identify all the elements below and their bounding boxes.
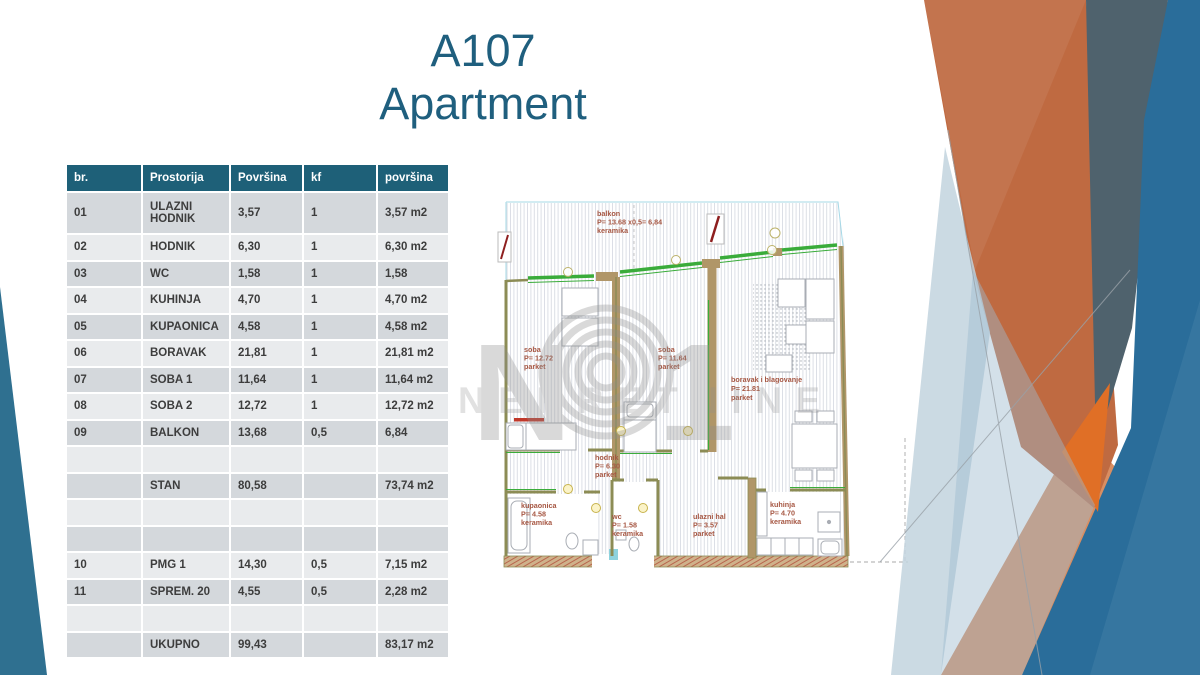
table-cell bbox=[230, 499, 303, 526]
table-cell: 11,64 bbox=[230, 367, 303, 394]
table-cell: 21,81 m2 bbox=[377, 340, 448, 367]
page-title: A107 Apartment bbox=[233, 24, 733, 130]
table-cell: 3,57 bbox=[230, 192, 303, 234]
title-line-2: Apartment bbox=[233, 77, 733, 130]
area-table: br. Prostorija Površina kf površina 01UL… bbox=[67, 165, 448, 657]
table-cell bbox=[377, 499, 448, 526]
floor-plan: balkon P= 13.68 x0,5= 6,84 keramika soba… bbox=[455, 193, 915, 608]
table-row: 03WC1,5811,58 bbox=[67, 261, 448, 288]
table-cell: 04 bbox=[67, 287, 142, 314]
table-cell: 0,5 bbox=[303, 552, 377, 579]
table-cell: 11 bbox=[67, 579, 142, 606]
table-cell: 0,5 bbox=[303, 420, 377, 447]
table-cell: 4,58 m2 bbox=[377, 314, 448, 341]
table-cell: HODNIK bbox=[142, 234, 230, 261]
table-cell bbox=[230, 605, 303, 632]
table-cell: 6,30 m2 bbox=[377, 234, 448, 261]
table-cell: 14,30 bbox=[230, 552, 303, 579]
table-row: 08SOBA 212,72112,72 m2 bbox=[67, 393, 448, 420]
table-cell: 99,43 bbox=[230, 632, 303, 658]
table-cell: 08 bbox=[67, 393, 142, 420]
col-header-br: br. bbox=[67, 165, 142, 192]
table-cell: 1 bbox=[303, 261, 377, 288]
table-cell: 7,15 m2 bbox=[377, 552, 448, 579]
table-cell: 1 bbox=[303, 340, 377, 367]
table-cell: STAN bbox=[142, 473, 230, 500]
table-row: 07SOBA 111,64111,64 m2 bbox=[67, 367, 448, 394]
table-cell: 09 bbox=[67, 420, 142, 447]
table-cell bbox=[377, 526, 448, 553]
table-cell: 80,58 bbox=[230, 473, 303, 500]
table-cell: 1 bbox=[303, 234, 377, 261]
table-cell: 11,64 m2 bbox=[377, 367, 448, 394]
table-cell: 12,72 m2 bbox=[377, 393, 448, 420]
table-cell: 06 bbox=[67, 340, 142, 367]
col-header-povrsina: Površina bbox=[230, 165, 303, 192]
table-cell: 1 bbox=[303, 393, 377, 420]
table-cell: 13,68 bbox=[230, 420, 303, 447]
decor-left-wedge bbox=[0, 285, 50, 675]
table-cell: ULAZNI HODNIK bbox=[142, 192, 230, 234]
table-cell bbox=[230, 446, 303, 473]
table-cell: PMG 1 bbox=[142, 552, 230, 579]
table-cell: 1,58 bbox=[377, 261, 448, 288]
table-cell: 01 bbox=[67, 192, 142, 234]
table-cell: 07 bbox=[67, 367, 142, 394]
table-cell: 21,81 bbox=[230, 340, 303, 367]
table-cell: 6,84 bbox=[377, 420, 448, 447]
table-cell bbox=[303, 473, 377, 500]
table-cell: 02 bbox=[67, 234, 142, 261]
table-cell bbox=[67, 605, 142, 632]
table-cell: KUHINJA bbox=[142, 287, 230, 314]
table-row: UKUPNO99,4383,17 m2 bbox=[67, 632, 448, 658]
table-cell: SPREM. 20 bbox=[142, 579, 230, 606]
table-cell: 3,57 m2 bbox=[377, 192, 448, 234]
table-row: 11SPREM. 204,550,52,28 m2 bbox=[67, 579, 448, 606]
table-cell bbox=[303, 446, 377, 473]
table-cell bbox=[303, 499, 377, 526]
table-row: STAN80,5873,74 m2 bbox=[67, 473, 448, 500]
table-cell: BALKON bbox=[142, 420, 230, 447]
table-cell: 10 bbox=[67, 552, 142, 579]
table-row bbox=[67, 499, 448, 526]
watermark-brand-word: NEKRETNINE bbox=[458, 380, 834, 421]
table-cell: 12,72 bbox=[230, 393, 303, 420]
table-row: 01ULAZNI HODNIK3,5713,57 m2 bbox=[67, 192, 448, 234]
table-cell bbox=[230, 526, 303, 553]
slide: A107 Apartment br. Prostorija Površina k… bbox=[0, 0, 1200, 675]
table-cell bbox=[303, 605, 377, 632]
table-cell: UKUPNO bbox=[142, 632, 230, 658]
table-row bbox=[67, 446, 448, 473]
table-cell: 05 bbox=[67, 314, 142, 341]
table-row: 10PMG 114,300,57,15 m2 bbox=[67, 552, 448, 579]
table-cell: 1 bbox=[303, 367, 377, 394]
table-row: 06BORAVAK21,81121,81 m2 bbox=[67, 340, 448, 367]
table-cell: SOBA 1 bbox=[142, 367, 230, 394]
table-cell bbox=[142, 526, 230, 553]
table-cell bbox=[67, 499, 142, 526]
area-table-body: 01ULAZNI HODNIK3,5713,57 m202HODNIK6,301… bbox=[67, 192, 448, 657]
table-cell bbox=[303, 632, 377, 658]
table-cell bbox=[67, 526, 142, 553]
table-row bbox=[67, 605, 448, 632]
table-cell: 73,74 m2 bbox=[377, 473, 448, 500]
table-cell: 03 bbox=[67, 261, 142, 288]
table-cell: 0,5 bbox=[303, 579, 377, 606]
table-cell: 1 bbox=[303, 287, 377, 314]
table-cell: 1 bbox=[303, 314, 377, 341]
table-row: 09BALKON13,680,56,84 bbox=[67, 420, 448, 447]
table-cell bbox=[377, 446, 448, 473]
table-cell bbox=[377, 605, 448, 632]
col-header-povrsina-2: površina bbox=[377, 165, 448, 192]
table-cell: SOBA 2 bbox=[142, 393, 230, 420]
table-cell: 1 bbox=[303, 192, 377, 234]
table-cell: 4,70 m2 bbox=[377, 287, 448, 314]
table-cell: 4,70 bbox=[230, 287, 303, 314]
table-cell: 1,58 bbox=[230, 261, 303, 288]
table-cell bbox=[67, 473, 142, 500]
title-line-1: A107 bbox=[233, 24, 733, 77]
table-cell: BORAVAK bbox=[142, 340, 230, 367]
table-row bbox=[67, 526, 448, 553]
table-cell: 83,17 m2 bbox=[377, 632, 448, 658]
col-header-kf: kf bbox=[303, 165, 377, 192]
table-cell bbox=[67, 632, 142, 658]
table-header-row: br. Prostorija Površina kf površina bbox=[67, 165, 448, 192]
table-row: 04KUHINJA4,7014,70 m2 bbox=[67, 287, 448, 314]
col-header-prostorija: Prostorija bbox=[142, 165, 230, 192]
table-cell: KUPAONICA bbox=[142, 314, 230, 341]
table-cell bbox=[142, 446, 230, 473]
table-row: 02HODNIK6,3016,30 m2 bbox=[67, 234, 448, 261]
table-cell bbox=[67, 446, 142, 473]
table-cell: WC bbox=[142, 261, 230, 288]
table-cell bbox=[142, 605, 230, 632]
table-cell: 6,30 bbox=[230, 234, 303, 261]
table-cell: 2,28 m2 bbox=[377, 579, 448, 606]
table-row: 05KUPAONICA4,5814,58 m2 bbox=[67, 314, 448, 341]
table-cell bbox=[142, 499, 230, 526]
table-cell bbox=[303, 526, 377, 553]
decor-right-facets bbox=[880, 0, 1200, 675]
table-cell: 4,55 bbox=[230, 579, 303, 606]
table-cell: 4,58 bbox=[230, 314, 303, 341]
